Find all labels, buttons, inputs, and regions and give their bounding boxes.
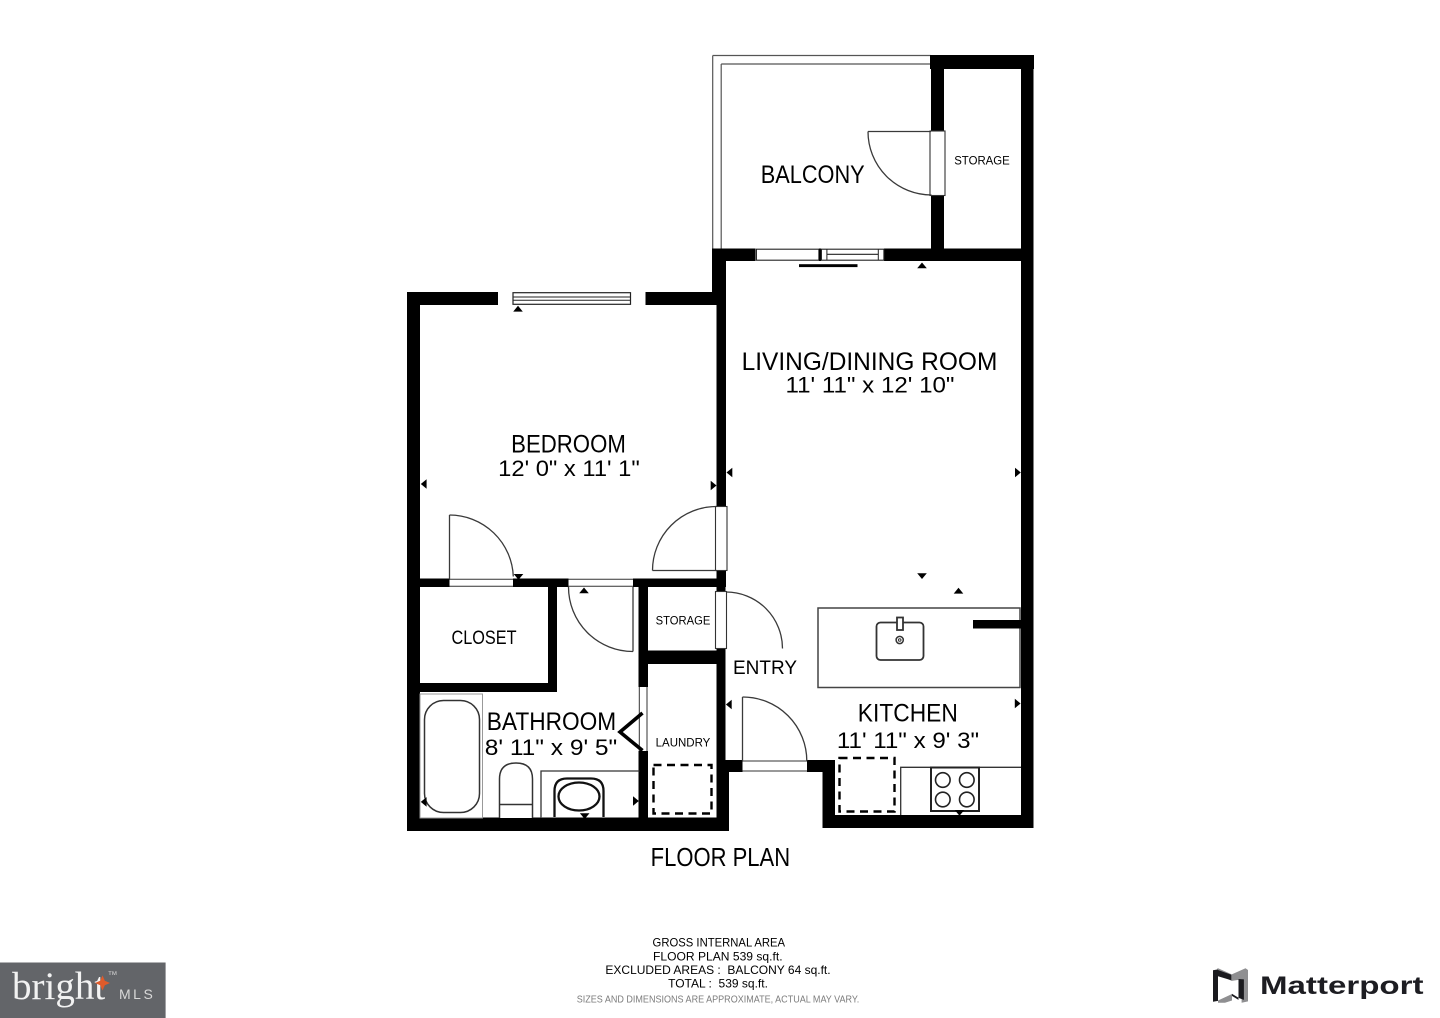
svg-text:FLOOR PLAN: FLOOR PLAN — [651, 842, 791, 872]
svg-text:STORAGE: STORAGE — [656, 616, 711, 628]
svg-text:12' 0" x 11' 1": 12' 0" x 11' 1" — [498, 456, 640, 481]
svg-text:KITCHEN: KITCHEN — [858, 700, 958, 728]
svg-text:EXCLUDED AREAS : BALCONY 64 s: EXCLUDED AREAS : BALCONY 64 sq.ft. — [605, 963, 830, 977]
svg-text:bright: bright — [12, 965, 105, 1008]
svg-text:CLOSET: CLOSET — [452, 628, 517, 649]
svg-text:BALCONY: BALCONY — [761, 161, 865, 189]
svg-text:SIZES AND DIMENSIONS ARE APPRO: SIZES AND DIMENSIONS ARE APPROXIMATE, AC… — [577, 995, 860, 1006]
svg-text:STORAGE: STORAGE — [954, 156, 1010, 168]
svg-text:FLOOR PLAN 539 sq.ft.: FLOOR PLAN 539 sq.ft. — [653, 949, 783, 963]
svg-text:LAUNDRY: LAUNDRY — [656, 738, 711, 750]
svg-text:MLS: MLS — [119, 986, 155, 1002]
svg-text:11' 11" x 12' 10": 11' 11" x 12' 10" — [786, 373, 955, 398]
svg-text:Matterport: Matterport — [1260, 972, 1424, 1000]
svg-text:BEDROOM: BEDROOM — [511, 431, 626, 459]
svg-text:TOTAL : 539 sq.ft.: TOTAL : 539 sq.ft. — [668, 977, 768, 991]
svg-text:8' 11" x 9' 5": 8' 11" x 9' 5" — [485, 735, 618, 760]
svg-text:ENTRY: ENTRY — [733, 658, 797, 679]
svg-text:BATHROOM: BATHROOM — [487, 708, 616, 736]
svg-text:™: ™ — [108, 970, 118, 981]
svg-text:GROSS INTERNAL AREA: GROSS INTERNAL AREA — [653, 935, 786, 949]
svg-text:11' 11" x 9' 3": 11' 11" x 9' 3" — [837, 728, 979, 753]
